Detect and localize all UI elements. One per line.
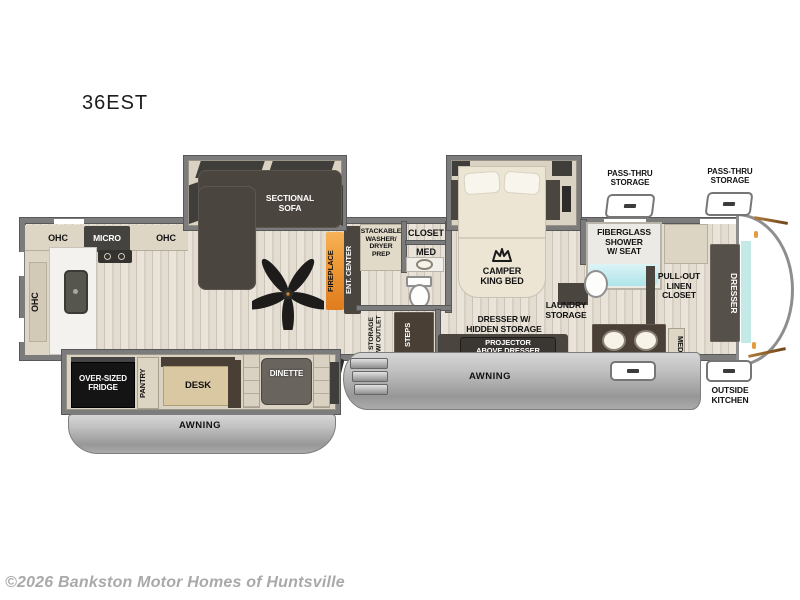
outside-kitchen-door xyxy=(706,360,752,382)
med-label-midbath: MED xyxy=(408,247,444,257)
crown-icon xyxy=(489,246,515,264)
window-gap xyxy=(54,219,84,224)
king-bed-label: CAMPER KING BED xyxy=(460,266,544,286)
teal-accent-strip xyxy=(740,240,752,344)
front-dresser-label: DRESSER xyxy=(712,250,738,336)
ohc-label-top-left: OHC xyxy=(40,233,76,243)
dinette-label: DINETTE xyxy=(261,370,312,379)
dresser-hidden-label: DRESSER W/ HIDDEN STORAGE xyxy=(446,315,562,334)
vanity-sink-left xyxy=(602,330,626,351)
toilet-front-bath xyxy=(584,270,608,298)
sectional-sofa-label: SECTIONAL SOFA xyxy=(240,194,340,213)
awning-access-door xyxy=(610,361,656,381)
front-cap-light xyxy=(752,342,756,349)
outside-step xyxy=(350,358,388,369)
bedroom-tv xyxy=(562,186,571,212)
door-handle xyxy=(723,369,735,373)
micro-label: MICRO xyxy=(84,234,130,244)
front-cap-light xyxy=(754,231,758,238)
washer-dryer-label: STACKABLE WASHER/ DRYER PREP xyxy=(360,228,402,258)
pass-thru-label-1: PASS-THRU STORAGE xyxy=(594,170,666,188)
burner xyxy=(104,253,111,260)
storage-outlet-label: STORAGE W/ OUTLET xyxy=(368,310,392,358)
vanity-sink-right xyxy=(634,330,658,351)
outside-kitchen-label: OUTSIDE KITCHEN xyxy=(704,386,756,405)
pull-out-linen-label: PULL-OUT LINEN CLOSET xyxy=(650,272,708,301)
copyright-text: ©2026 Bankston Motor Homes of Huntsville xyxy=(5,574,425,592)
model-title: 36EST xyxy=(82,92,162,114)
shower-label: FIBERGLASS SHOWER W/ SEAT xyxy=(586,228,662,257)
dinette-bench-right xyxy=(313,354,330,408)
window-gap xyxy=(19,318,24,342)
fridge-label: OVER-SIZED FRIDGE xyxy=(71,375,135,393)
awning-left-label: AWNING xyxy=(160,421,240,432)
floorplan-screenshot: 36EST OHC MICRO OHC OHC xyxy=(0,0,800,600)
dinette-table xyxy=(261,358,312,405)
fireplace-label: FIREPLACE xyxy=(327,236,343,306)
outside-step xyxy=(354,384,388,395)
steps-label: STEPS xyxy=(404,314,424,356)
pantry-label: PANTRY xyxy=(139,360,157,406)
bath-sink xyxy=(416,259,433,270)
nightstand-right xyxy=(544,180,560,220)
ceiling-fan-icon xyxy=(252,258,324,330)
outside-step xyxy=(352,371,388,382)
closet-wall xyxy=(406,241,446,244)
ohc-label-left: OHC xyxy=(30,282,46,322)
door-handle xyxy=(627,369,639,373)
desk-label: DESK xyxy=(163,381,233,392)
pillow xyxy=(503,171,540,195)
dinette-bench-left xyxy=(243,354,260,408)
window-gap xyxy=(19,252,24,276)
bed-fold-line xyxy=(459,237,545,239)
front-wardrobe xyxy=(664,224,708,264)
slide-window xyxy=(330,362,339,404)
pass-thru-door-2 xyxy=(705,192,754,216)
door-handle xyxy=(624,204,636,208)
burner xyxy=(118,253,125,260)
pass-thru-label-2: PASS-THRU STORAGE xyxy=(694,168,766,186)
slide-window xyxy=(552,161,572,176)
kitchen-faucet xyxy=(73,289,78,294)
pillow xyxy=(463,171,500,195)
wall xyxy=(446,222,451,312)
closet-label: CLOSET xyxy=(404,228,448,238)
pass-thru-door-1 xyxy=(605,194,656,218)
awning-right-label: AWNING xyxy=(450,372,530,383)
desk-side-strip xyxy=(228,360,241,408)
ohc-label-top-right: OHC xyxy=(146,233,186,243)
ent-center-label: ENT. CENTER xyxy=(345,228,360,312)
door-handle xyxy=(723,202,735,206)
